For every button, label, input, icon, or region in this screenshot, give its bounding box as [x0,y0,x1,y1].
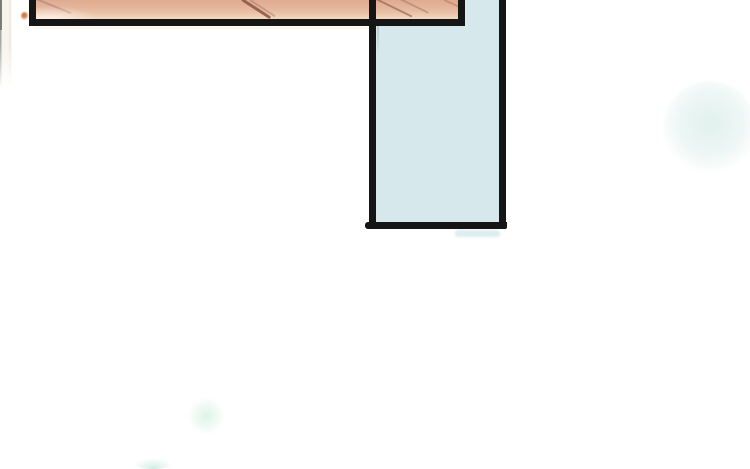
vertical-panel-border-bottom [365,222,507,229]
ink-speck [21,12,28,20]
under-panel-ghost [455,230,500,237]
webtoon-page [0,0,750,469]
sparkle-glow-bottom-edge [134,459,172,469]
vertical-panel-inner-line [377,24,379,56]
vertical-panel-border-right [499,0,506,229]
sparkle-glow-small [186,397,226,435]
page-edge-fade [0,0,14,94]
sparkle-glow-large [663,81,750,175]
vertical-panel-border-left [369,0,376,229]
skin-crease-line [444,0,458,10]
closeup-panel-fill [36,0,458,19]
highlight-sheen [36,6,98,19]
under-border-tint [33,27,373,30]
vertical-panel-fill [376,0,499,222]
closeup-panel-border-bottom [29,19,465,26]
